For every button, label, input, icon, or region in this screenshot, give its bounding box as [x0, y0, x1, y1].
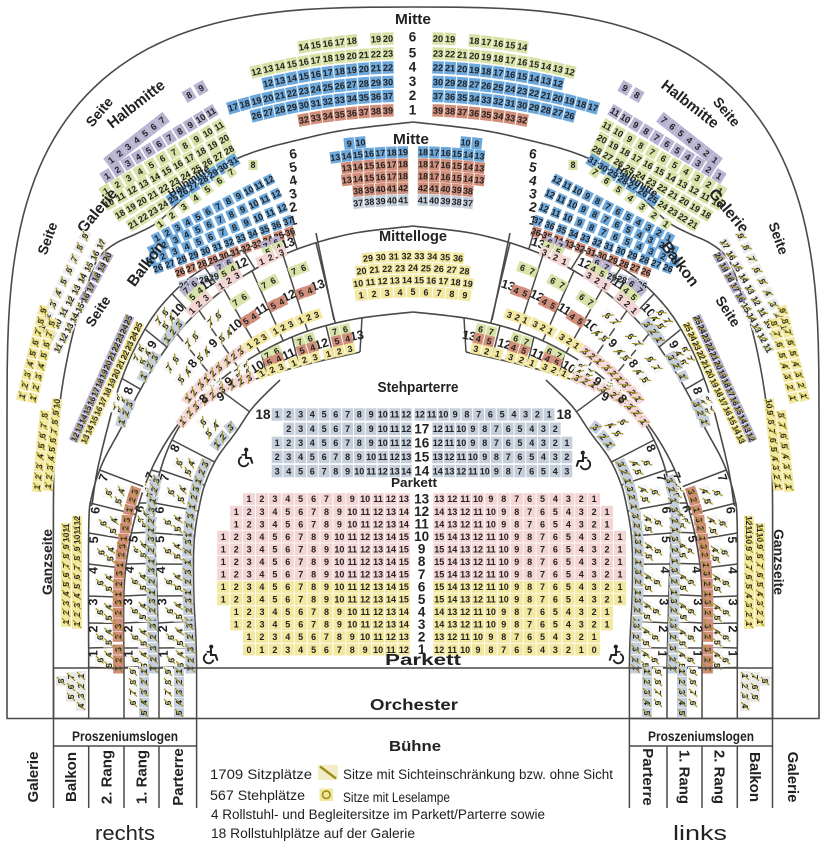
- svg-text:3: 3: [155, 598, 169, 605]
- svg-text:4: 4: [579, 582, 584, 592]
- svg-text:41: 41: [429, 183, 439, 193]
- svg-text:3: 3: [409, 74, 417, 89]
- svg-text:3: 3: [592, 595, 597, 605]
- svg-text:16: 16: [440, 148, 451, 159]
- svg-text:567 Stehplätze: 567 Stehplätze: [210, 787, 305, 803]
- svg-text:5: 5: [272, 570, 277, 580]
- svg-text:4: 4: [272, 507, 277, 517]
- svg-text:Mitte: Mitte: [395, 11, 431, 28]
- svg-text:4 Rollstuhl- und Begleitersitz: 4 Rollstuhl- und Begleitersitze im Parke…: [211, 807, 545, 822]
- svg-text:4: 4: [272, 607, 277, 617]
- svg-text:11: 11: [390, 410, 400, 420]
- svg-text:15: 15: [399, 570, 409, 580]
- svg-text:18: 18: [493, 53, 504, 64]
- svg-text:11: 11: [473, 607, 483, 617]
- svg-text:5: 5: [566, 570, 571, 580]
- svg-text:7: 7: [298, 582, 303, 592]
- svg-text:12: 12: [433, 424, 443, 434]
- svg-text:36: 36: [346, 108, 357, 119]
- svg-text:7: 7: [311, 519, 316, 529]
- svg-text:37: 37: [433, 91, 444, 101]
- svg-text:3: 3: [247, 595, 252, 605]
- svg-text:15: 15: [286, 58, 298, 70]
- svg-text:7: 7: [324, 632, 329, 642]
- svg-text:14: 14: [402, 275, 412, 285]
- svg-text:9: 9: [501, 507, 506, 517]
- svg-text:1: 1: [617, 557, 622, 567]
- svg-text:20: 20: [383, 34, 394, 44]
- svg-text:18: 18: [418, 147, 428, 157]
- svg-text:8: 8: [311, 532, 316, 542]
- svg-text:1: 1: [579, 645, 584, 655]
- svg-text:3: 3: [272, 632, 277, 642]
- svg-text:3: 3: [86, 599, 100, 606]
- svg-text:3: 3: [566, 632, 571, 642]
- svg-text:6: 6: [324, 645, 329, 655]
- svg-text:15: 15: [434, 582, 444, 592]
- svg-text:5: 5: [87, 536, 101, 543]
- svg-text:30: 30: [383, 77, 394, 87]
- svg-text:10: 10: [360, 632, 370, 642]
- svg-text:7: 7: [540, 532, 545, 542]
- svg-text:8: 8: [514, 620, 519, 630]
- svg-text:28: 28: [358, 78, 369, 89]
- svg-text:9: 9: [501, 519, 506, 529]
- svg-text:3: 3: [579, 607, 584, 617]
- svg-text:3: 3: [566, 494, 571, 504]
- svg-text:30: 30: [433, 77, 444, 87]
- svg-text:19: 19: [398, 147, 408, 157]
- svg-text:13: 13: [401, 452, 411, 462]
- svg-text:9: 9: [324, 582, 329, 592]
- svg-text:2: 2: [604, 532, 609, 542]
- svg-text:8: 8: [250, 160, 255, 170]
- svg-text:2: 2: [234, 582, 239, 592]
- svg-text:8: 8: [482, 438, 487, 448]
- svg-text:11: 11: [445, 424, 455, 434]
- svg-text:5: 5: [285, 607, 290, 617]
- svg-text:5: 5: [553, 620, 558, 630]
- svg-text:20: 20: [358, 64, 369, 75]
- svg-text:1: 1: [617, 582, 622, 592]
- svg-text:4: 4: [726, 567, 740, 574]
- svg-text:6: 6: [540, 620, 545, 630]
- svg-text:1: 1: [234, 620, 239, 630]
- svg-text:17: 17: [504, 55, 516, 66]
- svg-text:12: 12: [473, 557, 483, 567]
- svg-text:7: 7: [506, 452, 511, 462]
- svg-text:21: 21: [457, 50, 468, 61]
- svg-text:5: 5: [566, 544, 571, 554]
- svg-text:10: 10: [334, 570, 344, 580]
- svg-text:13: 13: [474, 163, 485, 174]
- svg-text:14: 14: [399, 519, 409, 529]
- svg-text:22: 22: [286, 87, 298, 99]
- svg-text:10: 10: [353, 278, 364, 289]
- svg-text:40: 40: [429, 195, 439, 205]
- svg-text:1. Rang: 1. Rang: [134, 750, 151, 804]
- svg-text:3: 3: [523, 410, 528, 420]
- svg-text:22: 22: [433, 63, 444, 73]
- svg-text:20: 20: [433, 34, 444, 44]
- svg-text:18: 18: [334, 66, 345, 77]
- svg-text:14: 14: [386, 582, 396, 592]
- svg-text:10: 10: [347, 519, 357, 529]
- svg-text:1: 1: [275, 410, 280, 420]
- svg-text:15: 15: [399, 595, 409, 605]
- svg-text:19: 19: [469, 65, 480, 76]
- svg-text:9: 9: [514, 582, 519, 592]
- svg-text:2: 2: [564, 452, 569, 462]
- svg-text:16: 16: [298, 56, 310, 68]
- svg-text:4: 4: [579, 570, 584, 580]
- svg-text:23: 23: [516, 85, 528, 97]
- svg-text:16: 16: [310, 69, 322, 80]
- svg-text:15: 15: [504, 40, 516, 51]
- svg-text:7: 7: [345, 424, 350, 434]
- svg-text:7: 7: [494, 424, 499, 434]
- svg-text:12: 12: [460, 519, 470, 529]
- svg-text:12: 12: [390, 452, 400, 462]
- svg-text:12: 12: [444, 452, 454, 462]
- svg-text:7: 7: [345, 438, 350, 448]
- svg-text:14: 14: [341, 151, 352, 162]
- svg-text:16: 16: [375, 160, 386, 171]
- svg-text:14: 14: [434, 620, 444, 630]
- svg-text:9: 9: [501, 607, 506, 617]
- svg-text:1: 1: [592, 494, 597, 504]
- svg-text:10: 10: [347, 607, 357, 617]
- svg-text:21: 21: [358, 50, 369, 61]
- svg-text:12: 12: [473, 595, 483, 605]
- svg-text:10: 10: [499, 544, 509, 554]
- svg-text:8: 8: [357, 438, 362, 448]
- svg-text:16: 16: [322, 38, 333, 49]
- svg-text:7: 7: [345, 410, 350, 420]
- svg-text:19: 19: [346, 65, 357, 76]
- svg-text:10: 10: [378, 438, 388, 448]
- svg-text:11: 11: [378, 452, 388, 462]
- svg-text:11: 11: [473, 507, 483, 517]
- svg-text:Mitte: Mitte: [393, 131, 429, 148]
- svg-text:12: 12: [456, 466, 466, 476]
- svg-text:9: 9: [488, 632, 493, 642]
- svg-text:9: 9: [324, 532, 329, 542]
- svg-text:4: 4: [259, 595, 264, 605]
- svg-text:3: 3: [298, 438, 303, 448]
- svg-text:8: 8: [482, 424, 487, 434]
- svg-text:12: 12: [473, 570, 483, 580]
- svg-text:14: 14: [463, 174, 474, 185]
- svg-text:8: 8: [333, 466, 338, 476]
- svg-text:15: 15: [452, 149, 463, 160]
- svg-text:8: 8: [514, 607, 519, 617]
- svg-text:38: 38: [353, 186, 364, 197]
- svg-text:2: 2: [272, 645, 277, 655]
- svg-text:11: 11: [390, 438, 400, 448]
- svg-text:7: 7: [540, 570, 545, 580]
- svg-text:9: 9: [501, 620, 506, 630]
- svg-text:5: 5: [285, 620, 290, 630]
- svg-text:16: 16: [375, 172, 386, 183]
- svg-text:12: 12: [460, 620, 470, 630]
- svg-text:5: 5: [540, 632, 545, 642]
- svg-text:8: 8: [501, 494, 506, 504]
- svg-text:2: 2: [604, 544, 609, 554]
- svg-text:7: 7: [298, 557, 303, 567]
- svg-text:7: 7: [501, 645, 506, 655]
- svg-text:Orchester: Orchester: [370, 697, 458, 714]
- svg-text:5: 5: [298, 466, 303, 476]
- svg-text:12: 12: [360, 582, 370, 592]
- svg-text:4: 4: [540, 645, 545, 655]
- svg-text:29: 29: [286, 102, 298, 114]
- svg-text:12: 12: [386, 632, 396, 642]
- svg-text:14: 14: [399, 620, 409, 630]
- svg-text:11: 11: [486, 532, 496, 542]
- svg-text:29: 29: [371, 78, 382, 89]
- svg-text:2: 2: [234, 570, 239, 580]
- svg-text:1: 1: [221, 532, 226, 542]
- svg-text:7: 7: [436, 288, 442, 298]
- svg-text:11: 11: [460, 632, 470, 642]
- svg-text:17: 17: [414, 421, 429, 436]
- svg-text:40: 40: [387, 195, 397, 205]
- svg-text:39: 39: [433, 106, 444, 116]
- svg-text:25: 25: [493, 82, 504, 93]
- svg-text:1: 1: [221, 582, 226, 592]
- svg-text:11: 11: [486, 582, 496, 592]
- svg-text:2. Rang: 2. Rang: [711, 750, 728, 804]
- svg-text:13: 13: [460, 570, 470, 580]
- svg-text:32: 32: [298, 114, 310, 126]
- svg-text:13: 13: [447, 620, 457, 630]
- svg-text:19: 19: [334, 52, 345, 63]
- svg-text:9: 9: [475, 645, 480, 655]
- svg-text:11: 11: [360, 607, 370, 617]
- svg-text:14: 14: [463, 161, 474, 172]
- svg-text:29: 29: [445, 78, 456, 89]
- svg-text:16: 16: [440, 172, 451, 183]
- svg-text:18: 18: [556, 407, 572, 422]
- svg-text:11: 11: [347, 532, 357, 542]
- svg-text:2: 2: [247, 607, 252, 617]
- svg-text:41: 41: [387, 183, 397, 193]
- svg-text:1: 1: [221, 557, 226, 567]
- svg-text:9: 9: [369, 424, 374, 434]
- svg-text:21: 21: [445, 63, 456, 74]
- svg-text:6: 6: [553, 544, 558, 554]
- svg-text:14: 14: [352, 161, 363, 172]
- svg-text:15: 15: [399, 532, 409, 542]
- svg-text:13: 13: [399, 494, 409, 504]
- svg-text:14: 14: [352, 174, 363, 185]
- svg-text:15: 15: [434, 544, 444, 554]
- svg-text:15: 15: [310, 40, 322, 51]
- svg-text:12: 12: [360, 570, 370, 580]
- svg-text:9: 9: [337, 507, 342, 517]
- svg-text:9: 9: [514, 532, 519, 542]
- svg-text:Bühne: Bühne: [389, 738, 441, 755]
- svg-text:3: 3: [272, 494, 277, 504]
- svg-text:6: 6: [298, 620, 303, 630]
- svg-text:35: 35: [481, 109, 492, 120]
- svg-text:27: 27: [346, 79, 357, 90]
- svg-text:37: 37: [353, 198, 364, 209]
- svg-text:4: 4: [529, 424, 534, 434]
- svg-text:9: 9: [350, 494, 355, 504]
- svg-text:33: 33: [504, 112, 516, 123]
- svg-text:12: 12: [373, 507, 383, 517]
- svg-text:6: 6: [553, 532, 558, 542]
- svg-text:2: 2: [592, 620, 597, 630]
- svg-text:10: 10: [334, 557, 344, 567]
- svg-text:1709 Sitzplätze: 1709 Sitzplätze: [210, 766, 312, 782]
- svg-text:3: 3: [592, 557, 597, 567]
- svg-text:4: 4: [566, 607, 571, 617]
- svg-text:7: 7: [322, 466, 327, 476]
- svg-text:8: 8: [337, 494, 342, 504]
- svg-text:8: 8: [527, 595, 532, 605]
- svg-text:10: 10: [438, 410, 448, 420]
- svg-text:4: 4: [579, 532, 584, 542]
- svg-text:13: 13: [373, 595, 383, 605]
- svg-text:12: 12: [373, 607, 383, 617]
- svg-text:5: 5: [566, 582, 571, 592]
- svg-text:6: 6: [285, 544, 290, 554]
- svg-text:2: 2: [259, 494, 264, 504]
- svg-text:31: 31: [310, 98, 322, 109]
- svg-text:5: 5: [311, 645, 316, 655]
- svg-text:8: 8: [527, 582, 532, 592]
- svg-text:25: 25: [421, 263, 431, 273]
- svg-text:35: 35: [358, 92, 369, 103]
- svg-text:11: 11: [347, 595, 357, 605]
- svg-text:8: 8: [527, 557, 532, 567]
- svg-text:13: 13: [330, 152, 341, 163]
- svg-text:4: 4: [259, 570, 264, 580]
- svg-text:7: 7: [298, 595, 303, 605]
- svg-text:13: 13: [386, 620, 396, 630]
- svg-text:14: 14: [447, 570, 457, 580]
- svg-text:20: 20: [457, 64, 468, 75]
- svg-text:16: 16: [493, 38, 504, 49]
- svg-text:17: 17: [493, 67, 504, 78]
- svg-text:12: 12: [401, 410, 411, 420]
- svg-text:30: 30: [375, 252, 386, 263]
- svg-text:6: 6: [298, 607, 303, 617]
- svg-text:10: 10: [499, 532, 509, 542]
- svg-text:9: 9: [363, 645, 368, 655]
- svg-text:2: 2: [86, 625, 100, 632]
- svg-text:10: 10: [360, 494, 370, 504]
- svg-text:13: 13: [341, 175, 352, 186]
- svg-text:10: 10: [347, 507, 357, 517]
- svg-text:7: 7: [333, 452, 338, 462]
- svg-text:5: 5: [272, 557, 277, 567]
- svg-text:8: 8: [357, 424, 362, 434]
- svg-text:40: 40: [375, 184, 386, 195]
- svg-text:0: 0: [592, 645, 597, 655]
- svg-text:11: 11: [456, 452, 466, 462]
- svg-text:6: 6: [527, 632, 532, 642]
- svg-text:2: 2: [234, 595, 239, 605]
- svg-text:3: 3: [247, 582, 252, 592]
- svg-text:15: 15: [399, 557, 409, 567]
- svg-text:13: 13: [460, 557, 470, 567]
- svg-text:8: 8: [514, 519, 519, 529]
- svg-text:5: 5: [272, 582, 277, 592]
- svg-text:13: 13: [447, 507, 457, 517]
- svg-text:39: 39: [451, 185, 462, 196]
- svg-text:5: 5: [566, 557, 571, 567]
- svg-text:9: 9: [488, 494, 493, 504]
- svg-text:13: 13: [373, 544, 383, 554]
- svg-text:4: 4: [579, 557, 584, 567]
- svg-text:4: 4: [397, 287, 402, 297]
- svg-text:15: 15: [434, 570, 444, 580]
- svg-text:36: 36: [371, 92, 382, 103]
- svg-text:16: 16: [414, 435, 430, 450]
- svg-text:15: 15: [399, 544, 409, 554]
- svg-text:Sitze mit Leselampe: Sitze mit Leselampe: [343, 790, 450, 805]
- svg-text:18 Rollstuhlplätze auf der Gal: 18 Rollstuhlplätze auf der Galerie: [211, 826, 415, 841]
- svg-text:11: 11: [486, 557, 496, 567]
- svg-text:3: 3: [553, 645, 558, 655]
- svg-text:5: 5: [541, 466, 546, 476]
- svg-text:8: 8: [350, 645, 355, 655]
- svg-text:3: 3: [275, 466, 280, 476]
- svg-text:8: 8: [501, 632, 506, 642]
- svg-text:35: 35: [440, 252, 451, 263]
- svg-text:14: 14: [386, 557, 396, 567]
- svg-text:6: 6: [285, 532, 290, 542]
- svg-text:17: 17: [310, 55, 322, 66]
- svg-text:10: 10: [456, 438, 466, 448]
- svg-text:8: 8: [514, 507, 519, 517]
- svg-text:2: 2: [726, 625, 740, 632]
- svg-text:8: 8: [464, 410, 469, 420]
- svg-text:18: 18: [386, 147, 396, 157]
- svg-text:6: 6: [333, 410, 338, 420]
- svg-text:6: 6: [322, 452, 327, 462]
- svg-text:14: 14: [447, 544, 457, 554]
- svg-text:13: 13: [373, 582, 383, 592]
- svg-text:14: 14: [447, 532, 457, 542]
- svg-text:Ganzseite: Ganzseite: [39, 529, 55, 595]
- svg-text:1: 1: [547, 410, 552, 420]
- svg-text:36: 36: [445, 92, 456, 103]
- svg-text:31: 31: [388, 251, 398, 261]
- svg-text:8: 8: [357, 410, 362, 420]
- svg-text:9: 9: [324, 544, 329, 554]
- svg-text:38: 38: [371, 106, 382, 117]
- svg-text:3: 3: [285, 645, 290, 655]
- svg-text:8: 8: [337, 632, 342, 642]
- svg-text:5: 5: [285, 519, 290, 529]
- svg-text:7: 7: [517, 466, 522, 476]
- svg-text:10: 10: [366, 452, 376, 462]
- svg-text:11: 11: [360, 519, 370, 529]
- svg-text:Mittelloge: Mittelloge: [379, 228, 447, 245]
- svg-text:1: 1: [409, 103, 417, 118]
- svg-text:8: 8: [570, 160, 575, 170]
- svg-text:3: 3: [259, 507, 264, 517]
- svg-text:6: 6: [311, 632, 316, 642]
- svg-text:1: 1: [604, 507, 609, 517]
- svg-text:18: 18: [398, 171, 408, 181]
- svg-text:13: 13: [460, 595, 470, 605]
